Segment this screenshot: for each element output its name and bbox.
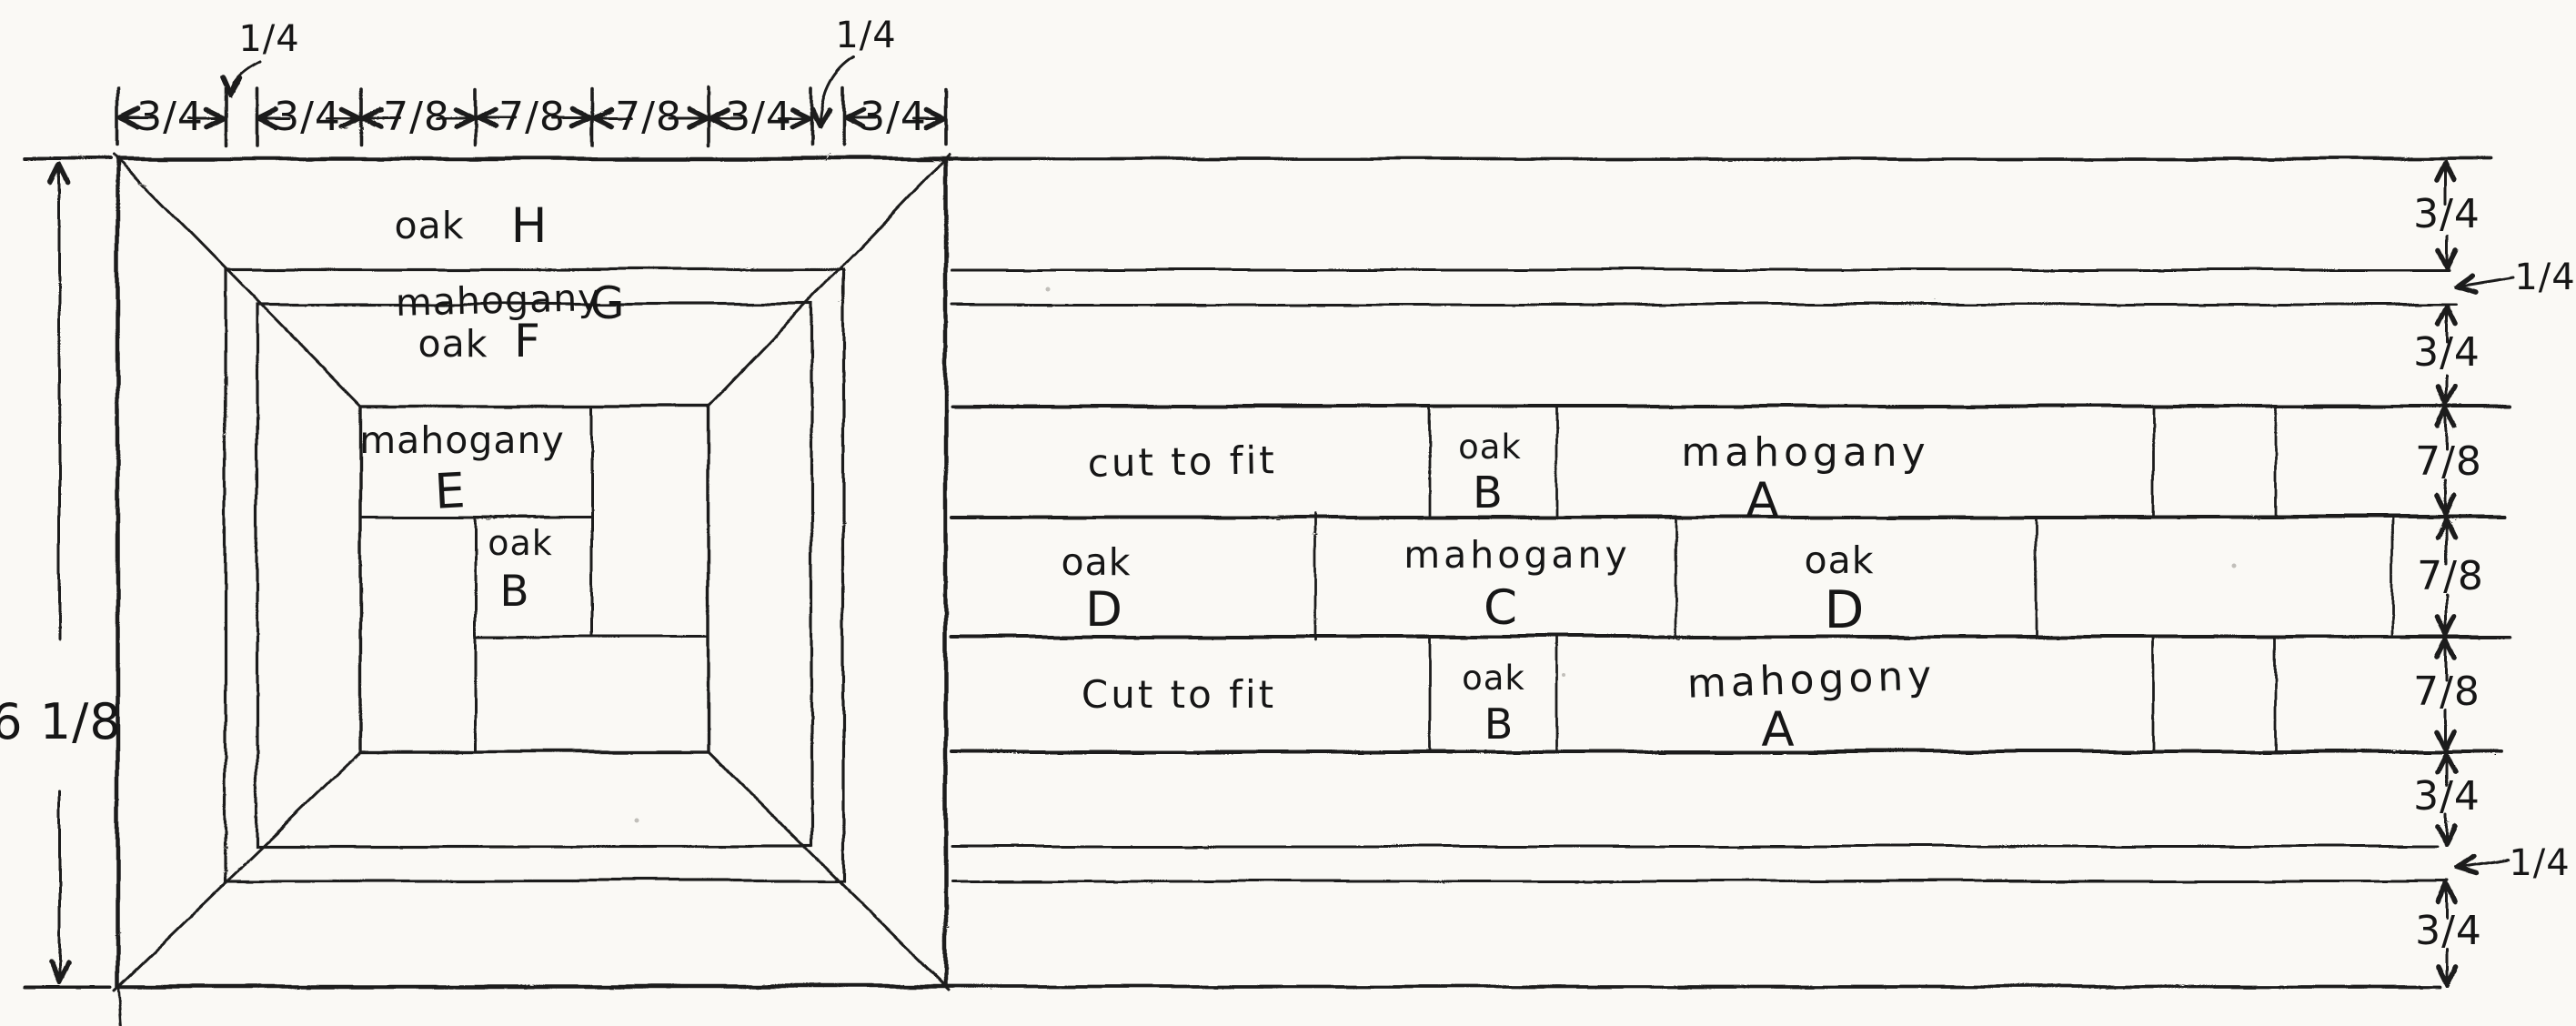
mahogany-c-letter-row5: C — [1484, 580, 1518, 636]
cut-to-fit-label-row6: Cut to fit — [1082, 672, 1276, 717]
oak-b-wood-label-row4: oak — [1458, 427, 1522, 467]
top-dim-label: 3/4 — [136, 94, 204, 140]
scan-speck — [2232, 564, 2237, 568]
oak-b-letter-row6: B — [1484, 699, 1514, 749]
paper-background — [0, 0, 2576, 1026]
oak-d-letter-row5b: D — [1825, 580, 1866, 640]
scan-speck — [635, 819, 639, 823]
oak-d-wood-label-row5: oak — [1062, 540, 1132, 584]
mahogany-e-letter: E — [433, 463, 468, 520]
woodworking-plan-drawing: 3/4 3/4 7/8 7/8 7/8 3/4 3/4 1/4 1/4 6 1/… — [0, 0, 2576, 1026]
scanned-plan-page: 3/4 3/4 7/8 7/8 7/8 3/4 3/4 1/4 1/4 6 1/… — [0, 0, 2576, 1026]
right-dim-label: 3/4 — [2413, 773, 2480, 820]
mahogany-g-wood-label: mahogany — [395, 276, 601, 325]
top-dim-label: 3/4 — [860, 94, 927, 140]
oak-d-wood-label-row5b: oak — [1805, 538, 1875, 582]
mahogany-a-letter-row4: A — [1746, 473, 1779, 528]
oak-f-letter: F — [514, 315, 541, 367]
right-dim-label: 3/4 — [2415, 908, 2482, 954]
cut-to-fit-label-row4: cut to fit — [1087, 438, 1277, 486]
right-dim-label: 1/4 — [2514, 256, 2575, 298]
top-dim-label: 7/8 — [615, 94, 682, 140]
oak-h-letter: H — [511, 198, 548, 254]
mahogany-a-letter-row6: A — [1761, 702, 1795, 758]
oak-b-letter: B — [499, 567, 529, 617]
scan-speck — [1562, 673, 1565, 677]
right-dim-label: 1/4 — [2509, 842, 2570, 884]
mahogany-a-wood-label-row6: mahogony — [1686, 652, 1937, 708]
mahogany-g-letter: G — [590, 277, 626, 329]
oak-f-wood-label: oak — [418, 322, 488, 366]
right-dim-label: 7/8 — [2417, 553, 2484, 599]
mahogany-c-wood-label-row5: mahogany — [1404, 533, 1631, 577]
oak-d-letter-row5: D — [1085, 582, 1123, 638]
right-dim-label: 3/4 — [2413, 191, 2480, 237]
scan-speck — [1046, 287, 1051, 292]
oak-b-wood-label: oak — [488, 523, 553, 563]
top-dim-label: 3/4 — [725, 94, 792, 140]
top-dim-label: 7/8 — [383, 94, 450, 140]
top-quarter-callout-right: 1/4 — [835, 15, 896, 56]
top-dim-label: 3/4 — [274, 94, 341, 140]
overall-height-label: 6 1/8 — [0, 693, 122, 750]
top-dim-label: 7/8 — [498, 94, 566, 140]
right-dim-label: 3/4 — [2413, 329, 2480, 376]
top-quarter-callout-left: 1/4 — [238, 18, 299, 60]
oak-h-wood-label: oak — [395, 204, 465, 247]
right-dim-label: 7/8 — [2415, 438, 2482, 485]
oak-b-letter-row4: B — [1473, 468, 1504, 518]
right-dim-label: 7/8 — [2413, 669, 2480, 715]
oak-b-wood-label-row6: oak — [1462, 659, 1525, 698]
mahogany-e-wood-label: mahogany — [359, 418, 565, 462]
mahogany-a-wood-label-row4: mahogany — [1681, 429, 1929, 476]
